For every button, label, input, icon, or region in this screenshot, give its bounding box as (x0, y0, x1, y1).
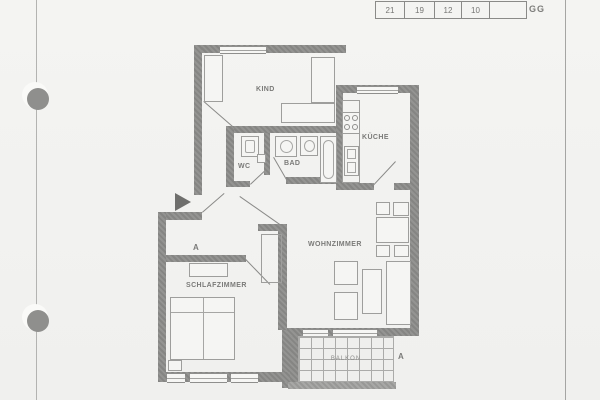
dining-chair (394, 245, 409, 257)
balcony-balustrade (288, 382, 396, 389)
shower-drain (280, 140, 293, 153)
window-bedroom-3 (231, 373, 258, 383)
door-wc (250, 171, 265, 185)
window-kind (220, 46, 266, 54)
section-marker-a-right: A (398, 352, 404, 361)
bed-headline (171, 312, 234, 313)
wc-handbasin (257, 154, 266, 163)
wall-kitchen-bottom-left (336, 183, 374, 190)
window-bedroom-1 (167, 373, 185, 383)
stove-burner-icon (352, 124, 358, 130)
door-kind (203, 101, 235, 129)
section-marker-a-top: A (193, 243, 199, 252)
shower (275, 136, 297, 157)
wardrobe-kind (204, 55, 223, 102)
punch-hole-top (27, 88, 49, 110)
entrance-arrow-icon (175, 193, 191, 211)
wall-kind-left (194, 45, 202, 195)
wall-kind-bottom (226, 126, 342, 133)
stove-burner-icon (344, 115, 350, 121)
balcony-tiles: BALKON (298, 336, 394, 382)
dining-table (376, 217, 409, 243)
left-margin-line (36, 0, 37, 400)
washbasin-bowl (304, 140, 315, 152)
right-page-edge-line (565, 0, 566, 400)
double-bed (170, 297, 235, 360)
room-label-kind: KIND (256, 86, 275, 93)
wall-bedroom-left (158, 212, 166, 382)
wall-kind-top (194, 45, 346, 53)
wall-right-outer (410, 85, 419, 336)
hall-closet (261, 234, 282, 283)
stove (342, 112, 360, 134)
coffee-table (362, 269, 382, 314)
stove-burner-icon (344, 124, 350, 130)
dining-chair (376, 245, 390, 257)
sofa (386, 261, 411, 325)
bathtub-inner (323, 140, 334, 179)
dining-chair (393, 202, 409, 216)
bathtub (320, 136, 337, 183)
door-kitchen (372, 161, 396, 187)
wardrobe-bedroom (189, 263, 228, 277)
armchair (334, 261, 358, 285)
window-kitchen (357, 86, 398, 94)
door-entry (202, 193, 225, 213)
revision-cell-empty (490, 2, 526, 18)
sink-basin (347, 149, 356, 159)
punch-hole-bottom (27, 310, 49, 332)
dining-chair (376, 202, 390, 215)
revision-table: 21 19 12 10 (375, 1, 527, 19)
room-label-bad: BAD (284, 160, 300, 167)
room-label-wohnzimmer: WOHNZIMMER (308, 241, 362, 248)
kitchen-sink (344, 146, 359, 176)
door-living (239, 196, 283, 227)
window-bedroom-2 (190, 373, 227, 383)
revision-cell: 19 (405, 2, 435, 18)
wall-wc-bottom (226, 181, 250, 187)
revision-cell: 10 (462, 2, 490, 18)
armchair (334, 292, 358, 320)
header-code: GG (529, 4, 545, 14)
wall-bedroom-top (166, 255, 246, 262)
revision-cell: 12 (435, 2, 462, 18)
wall-wc-left (226, 126, 234, 187)
room-label-schlafzimmer: SCHLAFZIMMER (186, 282, 247, 289)
desk-kind (281, 103, 335, 123)
room-label-kueche: KÜCHE (362, 134, 389, 141)
washbasin (300, 136, 318, 156)
wall-kitchen-bottom-right (394, 183, 410, 190)
stove-burner-icon (352, 115, 358, 121)
toilet-bowl (245, 140, 255, 153)
sink-drainer (347, 162, 356, 173)
room-label-balkon: BALKON (331, 356, 361, 362)
scanned-floorplan-page: 21 19 12 10 GG (0, 0, 600, 400)
revision-cell: 21 (376, 2, 405, 18)
room-label-wc: WC (238, 163, 250, 170)
nightstand (168, 360, 182, 371)
bed-kind (311, 57, 335, 103)
bed-divider-line (203, 298, 204, 359)
